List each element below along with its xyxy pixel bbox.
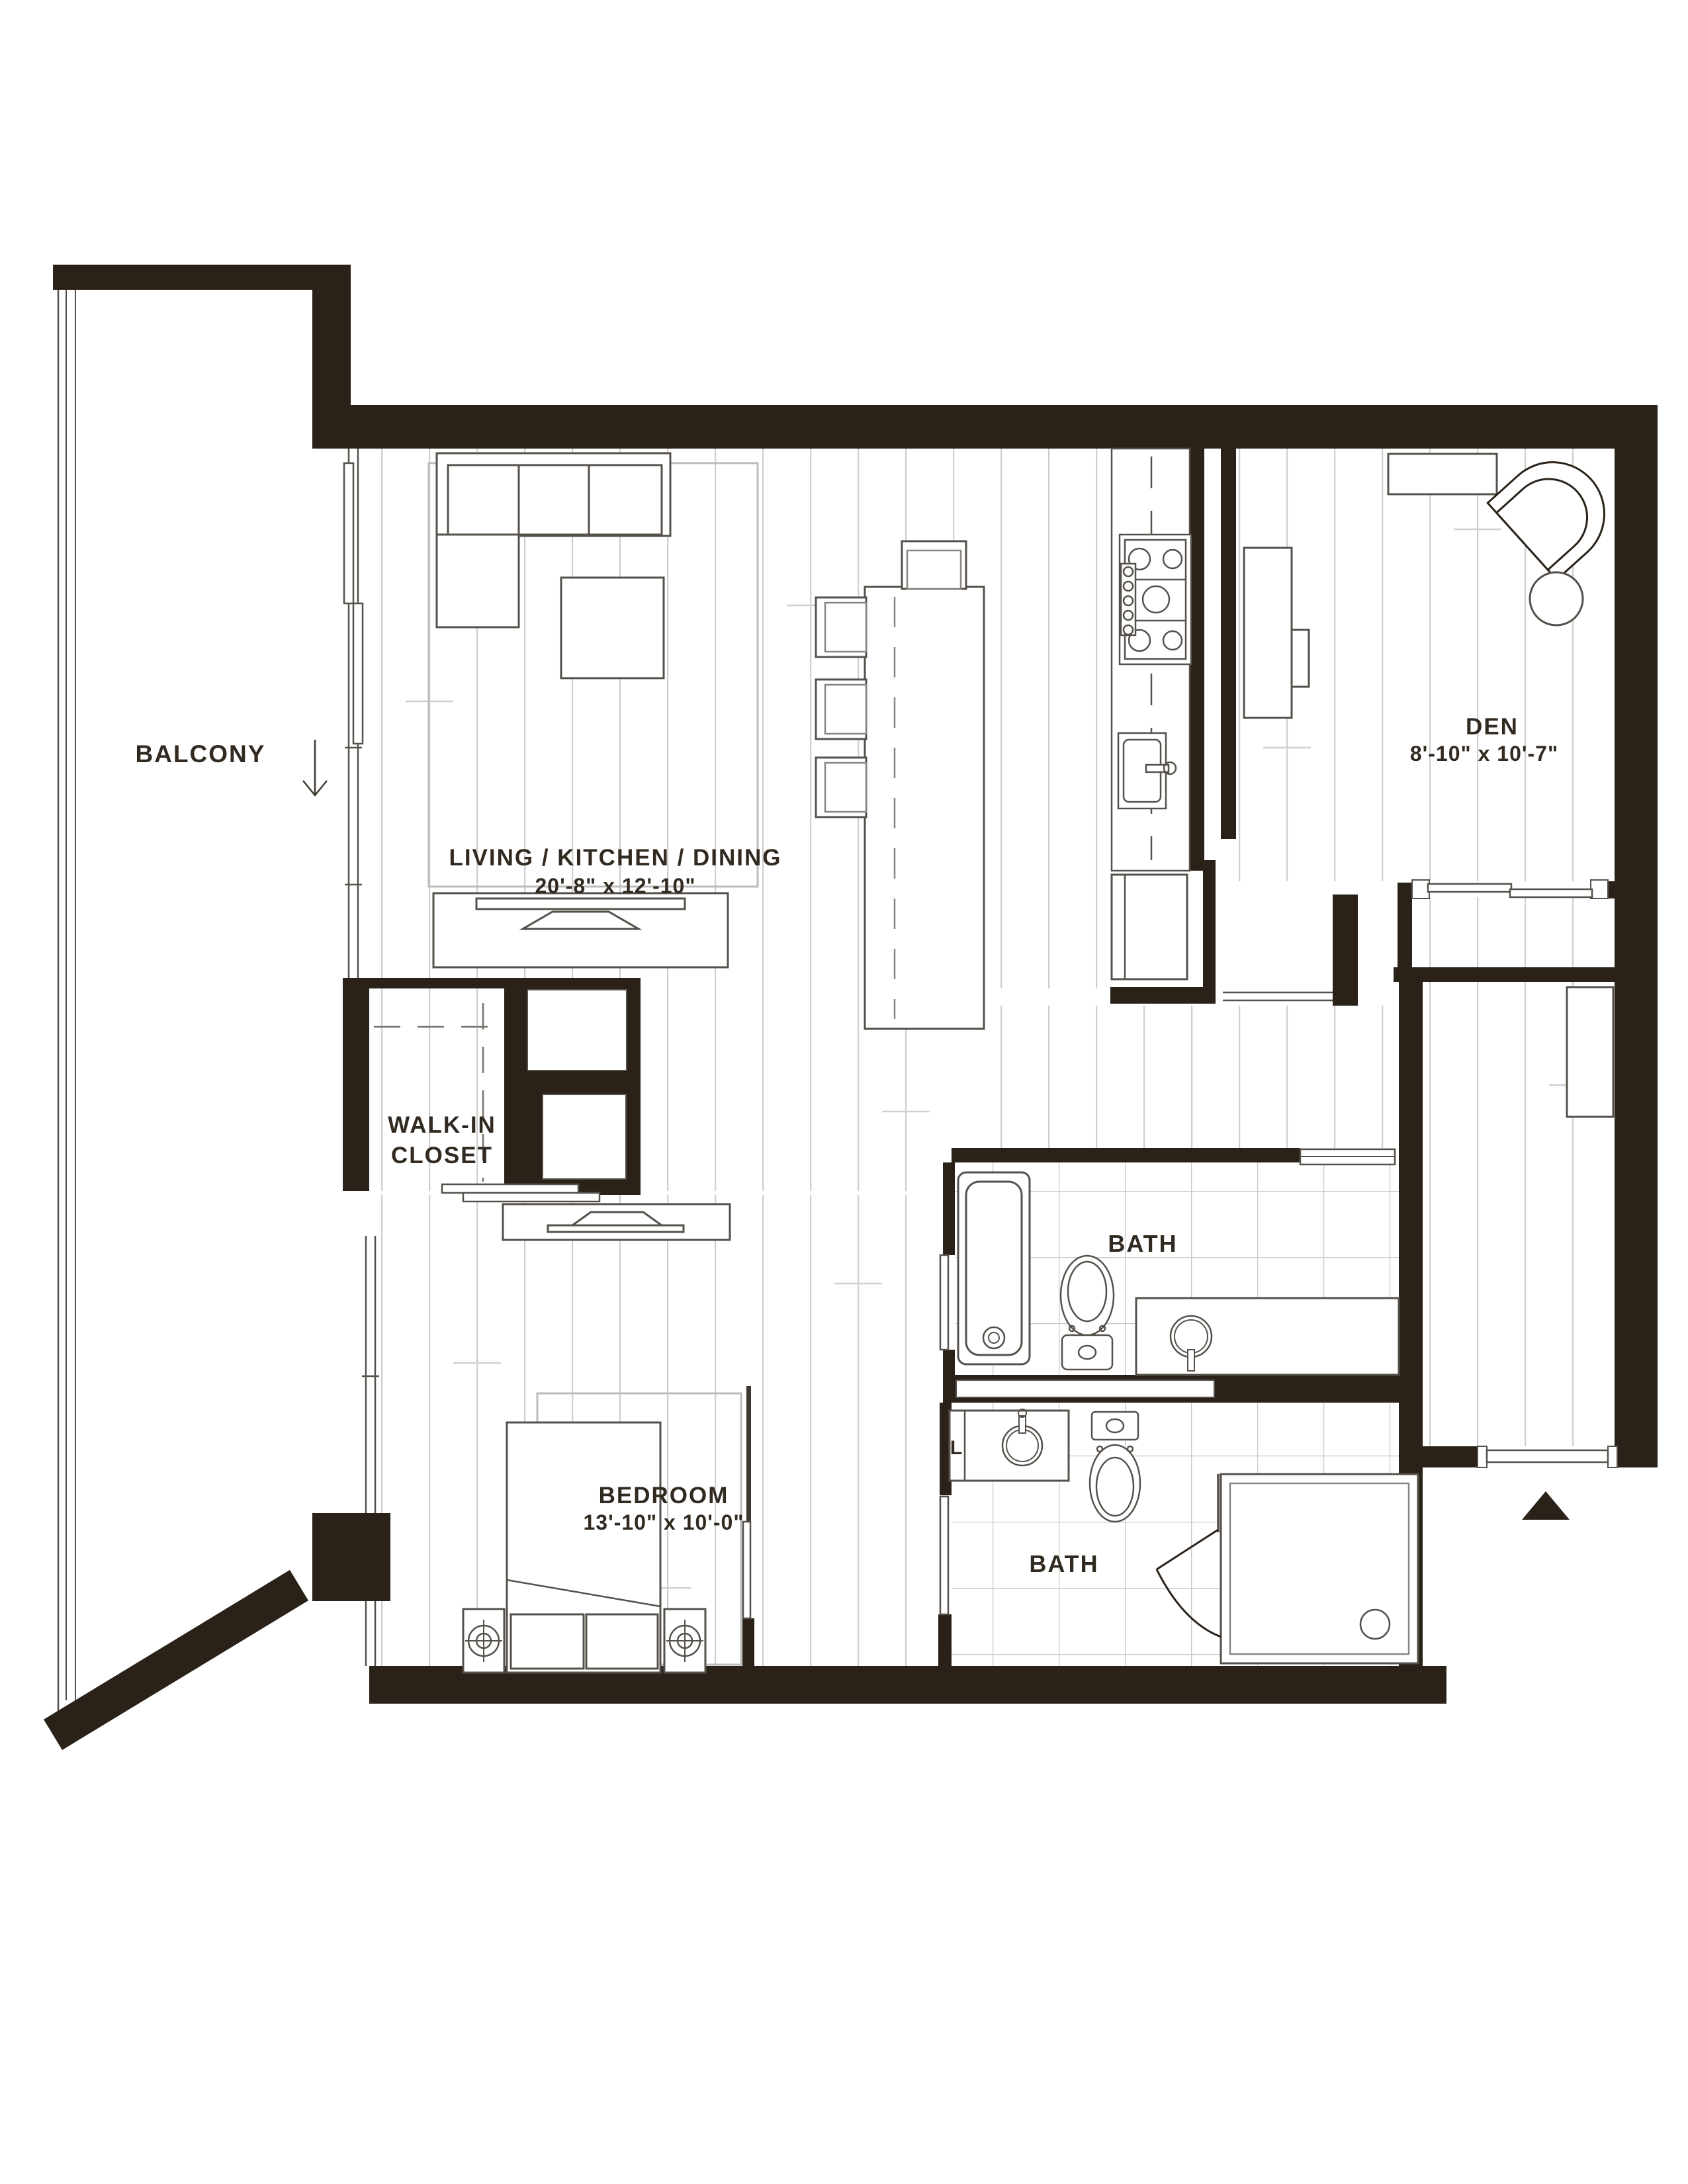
toilet — [1090, 1412, 1140, 1522]
toilet — [1061, 1256, 1114, 1370]
balcony-label: BALCONY — [136, 740, 266, 767]
bath-corridor-opening — [1223, 992, 1333, 1000]
den-desk — [1244, 548, 1292, 718]
floor-plan-page: BALCONY LIVING / KITCHEN / DINING 20'-8"… — [0, 0, 1688, 2184]
stool — [902, 541, 966, 589]
nightstand — [664, 1609, 705, 1673]
bed — [507, 1422, 660, 1673]
entry-closet — [1567, 987, 1613, 1117]
bath-lower-label: BATH — [1029, 1550, 1098, 1577]
den-shelf — [1388, 454, 1497, 494]
dresser — [503, 1204, 730, 1240]
bedroom-dim: 13'-10" x 10'-0" — [583, 1510, 744, 1534]
balcony-door-panel — [344, 463, 353, 603]
cooktop — [1120, 535, 1191, 664]
den-chair — [1292, 630, 1309, 687]
living-dim: 20'-8" x 12'-10" — [535, 874, 695, 898]
up-triangle-icon — [1522, 1491, 1570, 1520]
bath-upper-door — [940, 1255, 948, 1350]
den-label: DEN — [1466, 714, 1519, 740]
stool — [816, 679, 866, 739]
east-wall — [1615, 449, 1658, 1467]
balcony-door-panel-2 — [353, 603, 363, 744]
bedroom-door — [743, 1522, 750, 1618]
vanity-sink — [1136, 1298, 1399, 1375]
walk-in-closet-label-1: WALK-IN — [388, 1112, 496, 1138]
stool — [816, 758, 866, 817]
bathtub — [958, 1172, 1030, 1364]
floor-plan-drawing: BALCONY LIVING / KITCHEN / DINING 20'-8"… — [0, 0, 1688, 2184]
north-wall — [312, 405, 1658, 449]
bath-corridor-floor — [955, 1006, 1399, 1148]
entry-door — [1478, 1446, 1617, 1467]
den-dim: 8'-10" x 10'-7" — [1410, 742, 1558, 765]
stool — [816, 597, 866, 657]
laundry-label: L — [950, 1437, 963, 1459]
tv-console — [433, 893, 728, 967]
closet-sliding-door — [442, 1184, 600, 1201]
side-table — [1530, 572, 1583, 625]
kitchen — [1112, 449, 1191, 979]
bath-upper-label: BATH — [1108, 1230, 1177, 1257]
bath-lower-door — [940, 1497, 948, 1614]
pillow — [511, 1614, 584, 1669]
nightstand — [463, 1609, 504, 1673]
coffee-table — [561, 578, 664, 678]
den-sliding-door — [1412, 880, 1608, 898]
vanity-sink — [950, 1409, 1069, 1481]
bedroom-label: BEDROOM — [599, 1483, 729, 1508]
cooktop-knobs — [1121, 564, 1135, 635]
down-arrow-icon — [303, 740, 327, 795]
balcony — [58, 290, 327, 1732]
living-label: LIVING / KITCHEN / DINING — [449, 845, 781, 871]
walk-in-closet-label-2: CLOSET — [391, 1143, 493, 1168]
den-closet-floor — [1412, 897, 1598, 967]
diagonal-wall — [53, 1585, 299, 1735]
wall-niche — [956, 1380, 1214, 1397]
bath-window — [1300, 1149, 1395, 1164]
fridge — [1112, 875, 1187, 979]
pillow — [586, 1614, 658, 1669]
